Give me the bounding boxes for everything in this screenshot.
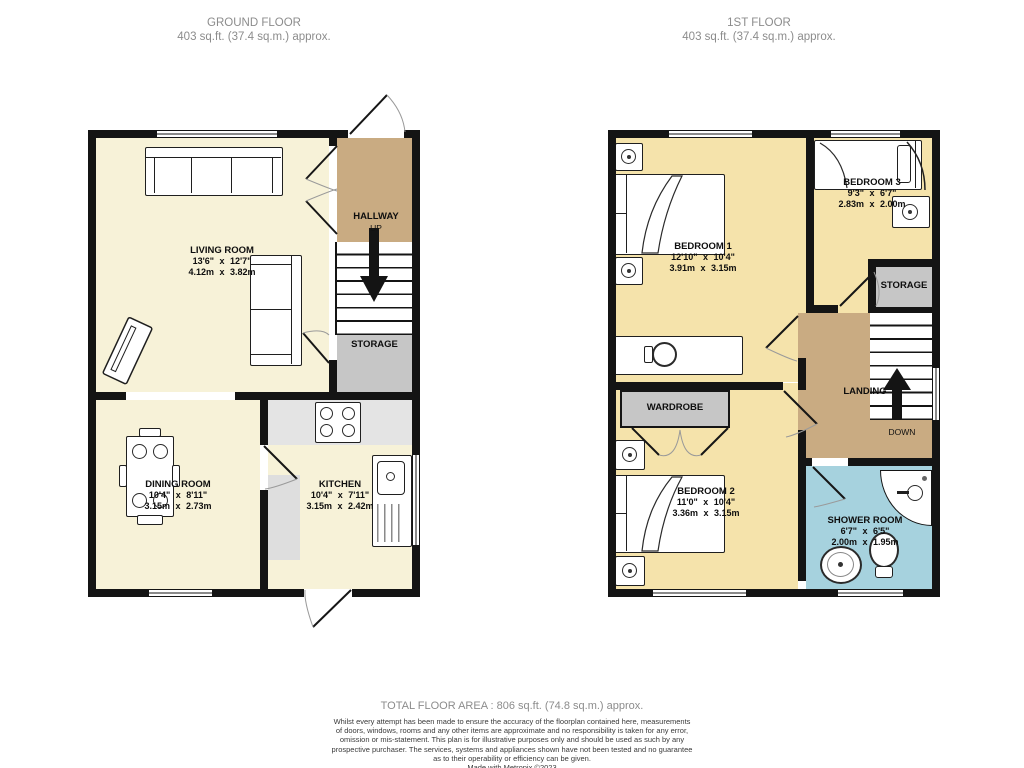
staircase-first-floor <box>870 313 932 420</box>
room-name: BEDROOM 1 <box>623 241 783 252</box>
wall <box>88 130 96 597</box>
total-floor-area: TOTAL FLOOR AREA : 806 sq.ft. (74.8 sq.m… <box>0 700 1024 712</box>
bedroom-2-label: BEDROOM 2 11'0" x 10'4" 3.36m x 3.15m <box>626 486 786 519</box>
desk <box>613 336 743 375</box>
wall <box>798 358 806 390</box>
shower-room-label: SHOWER ROOM 6'7" x 6'5" 2.00m x 1.95m <box>798 515 932 548</box>
window <box>669 130 752 138</box>
window <box>932 368 940 420</box>
wall <box>806 305 838 313</box>
room-name: HALLWAY <box>326 211 426 222</box>
wall <box>335 242 337 335</box>
floorplan-canvas: GROUND FLOOR 403 sq.ft. (37.4 sq.m.) app… <box>0 0 1024 768</box>
room-name: LIVING ROOM <box>142 245 302 256</box>
wall <box>848 458 932 466</box>
dining-chair <box>139 428 161 437</box>
place-setting-icon <box>132 444 147 459</box>
disclaimer-line: omission or mis-statement. This plan is … <box>0 735 1024 744</box>
room-dim-metric: 3.15m x 2.42m <box>260 501 420 512</box>
wall <box>868 307 932 313</box>
wall <box>798 430 806 581</box>
ground-floor-title: GROUND FLOOR 403 sq.ft. (37.4 sq.m.) app… <box>88 16 420 44</box>
ground-floor-subtitle: 403 sq.ft. (37.4 sq.m.) approx. <box>88 30 420 44</box>
room-name: SHOWER ROOM <box>798 515 932 526</box>
room-dim-metric: 2.83m x 2.00m <box>804 199 940 210</box>
living-room-label: LIVING ROOM 13'6" x 12'7" 4.12m x 3.82m <box>142 245 302 278</box>
room-dim-imperial: 10'4" x 7'11" <box>260 490 420 501</box>
footer: TOTAL FLOOR AREA : 806 sq.ft. (74.8 sq.m… <box>0 700 1024 768</box>
back-door-opening <box>304 589 352 597</box>
room-dim-imperial: 12'10" x 10'4" <box>623 252 783 263</box>
first-floor-title: 1ST FLOOR 403 sq.ft. (37.4 sq.m.) approx… <box>593 16 925 44</box>
room-dim-imperial: 9'3" x 6'7" <box>804 188 940 199</box>
room-dim-imperial: 10'4" x 8'11" <box>98 490 258 501</box>
up-label: UP <box>326 223 426 233</box>
landing-label: LANDING <box>820 386 910 397</box>
storage-first-floor-label: STORAGE <box>876 280 932 291</box>
ground-floor-plan: LIVING ROOM 13'6" x 12'7" 4.12m x 3.82m … <box>88 130 420 597</box>
bedroom-1-label: BEDROOM 1 12'10" x 10'4" 3.91m x 3.15m <box>623 241 783 274</box>
wall <box>868 259 932 267</box>
ground-floor-title-line: GROUND FLOOR <box>88 16 420 30</box>
room-dim-metric: 4.12m x 3.82m <box>142 267 302 278</box>
credit-line: Made with Metropix ©2023 <box>0 763 1024 768</box>
first-floor-subtitle: 403 sq.ft. (37.4 sq.m.) approx. <box>593 30 925 44</box>
wall <box>260 400 268 445</box>
disclaimer-line: Whilst every attempt has been made to en… <box>0 717 1024 726</box>
room-name: DINING ROOM <box>98 479 258 490</box>
disclaimer-line: prospective purchaser. The services, sys… <box>0 745 1024 754</box>
window <box>838 589 903 597</box>
disclaimer: Whilst every attempt has been made to en… <box>0 717 1024 768</box>
hallway-label: HALLWAY <box>326 211 426 222</box>
front-door-leaf <box>350 95 387 134</box>
window <box>831 130 900 138</box>
sofa-large <box>145 147 283 196</box>
room-dim-imperial: 11'0" x 10'4" <box>626 497 786 508</box>
room-name: BEDROOM 2 <box>626 486 786 497</box>
room-dim-metric: 2.00m x 1.95m <box>798 537 932 548</box>
disclaimer-line: as to their operability or efficiency ca… <box>0 754 1024 763</box>
wall <box>88 589 420 597</box>
desk-chair <box>652 342 677 367</box>
room-name: KITCHEN <box>260 479 420 490</box>
wall <box>608 130 616 597</box>
nightstand <box>615 143 643 171</box>
wall <box>616 382 783 390</box>
room-dim-imperial: 6'7" x 6'5" <box>798 526 932 537</box>
first-floor-title-line: 1ST FLOOR <box>593 16 925 30</box>
room-name: BEDROOM 3 <box>804 177 940 188</box>
first-floor-plan: BEDROOM 1 12'10" x 10'4" 3.91m x 3.15m B… <box>608 130 940 597</box>
wall <box>235 392 412 400</box>
front-door-opening <box>348 130 404 138</box>
room-dim-metric: 3.15m x 2.73m <box>98 501 258 512</box>
wall <box>798 458 812 466</box>
hob-icon <box>315 402 361 443</box>
wall <box>806 138 814 313</box>
window <box>149 589 212 597</box>
door-arc <box>387 95 405 132</box>
wardrobe-label: WARDROBE <box>620 402 730 413</box>
wall <box>329 138 337 146</box>
landing-floor-strip <box>870 420 932 458</box>
nightstand <box>615 556 645 586</box>
room-dim-metric: 3.91m x 3.15m <box>623 263 783 274</box>
window <box>653 589 746 597</box>
shower-tray-icon <box>820 546 862 584</box>
staircase-ground <box>337 242 412 335</box>
dining-room-label: DINING ROOM 10'4" x 8'11" 3.15m x 2.73m <box>98 479 258 512</box>
room-dim-imperial: 13'6" x 12'7" <box>142 256 302 267</box>
place-setting-icon <box>153 444 168 459</box>
dining-chair <box>137 515 163 525</box>
down-label: DOWN <box>876 427 928 437</box>
storage-ground-label: STORAGE <box>337 339 412 350</box>
window <box>157 130 277 138</box>
wall <box>96 392 126 400</box>
room-dim-metric: 3.36m x 3.15m <box>626 508 786 519</box>
nightstand <box>615 440 645 470</box>
kitchen-label: KITCHEN 10'4" x 7'11" 3.15m x 2.42m <box>260 479 420 512</box>
disclaimer-line: of doors, windows, rooms and any other i… <box>0 726 1024 735</box>
bedroom-3-label: BEDROOM 3 9'3" x 6'7" 2.83m x 2.00m <box>804 177 940 210</box>
